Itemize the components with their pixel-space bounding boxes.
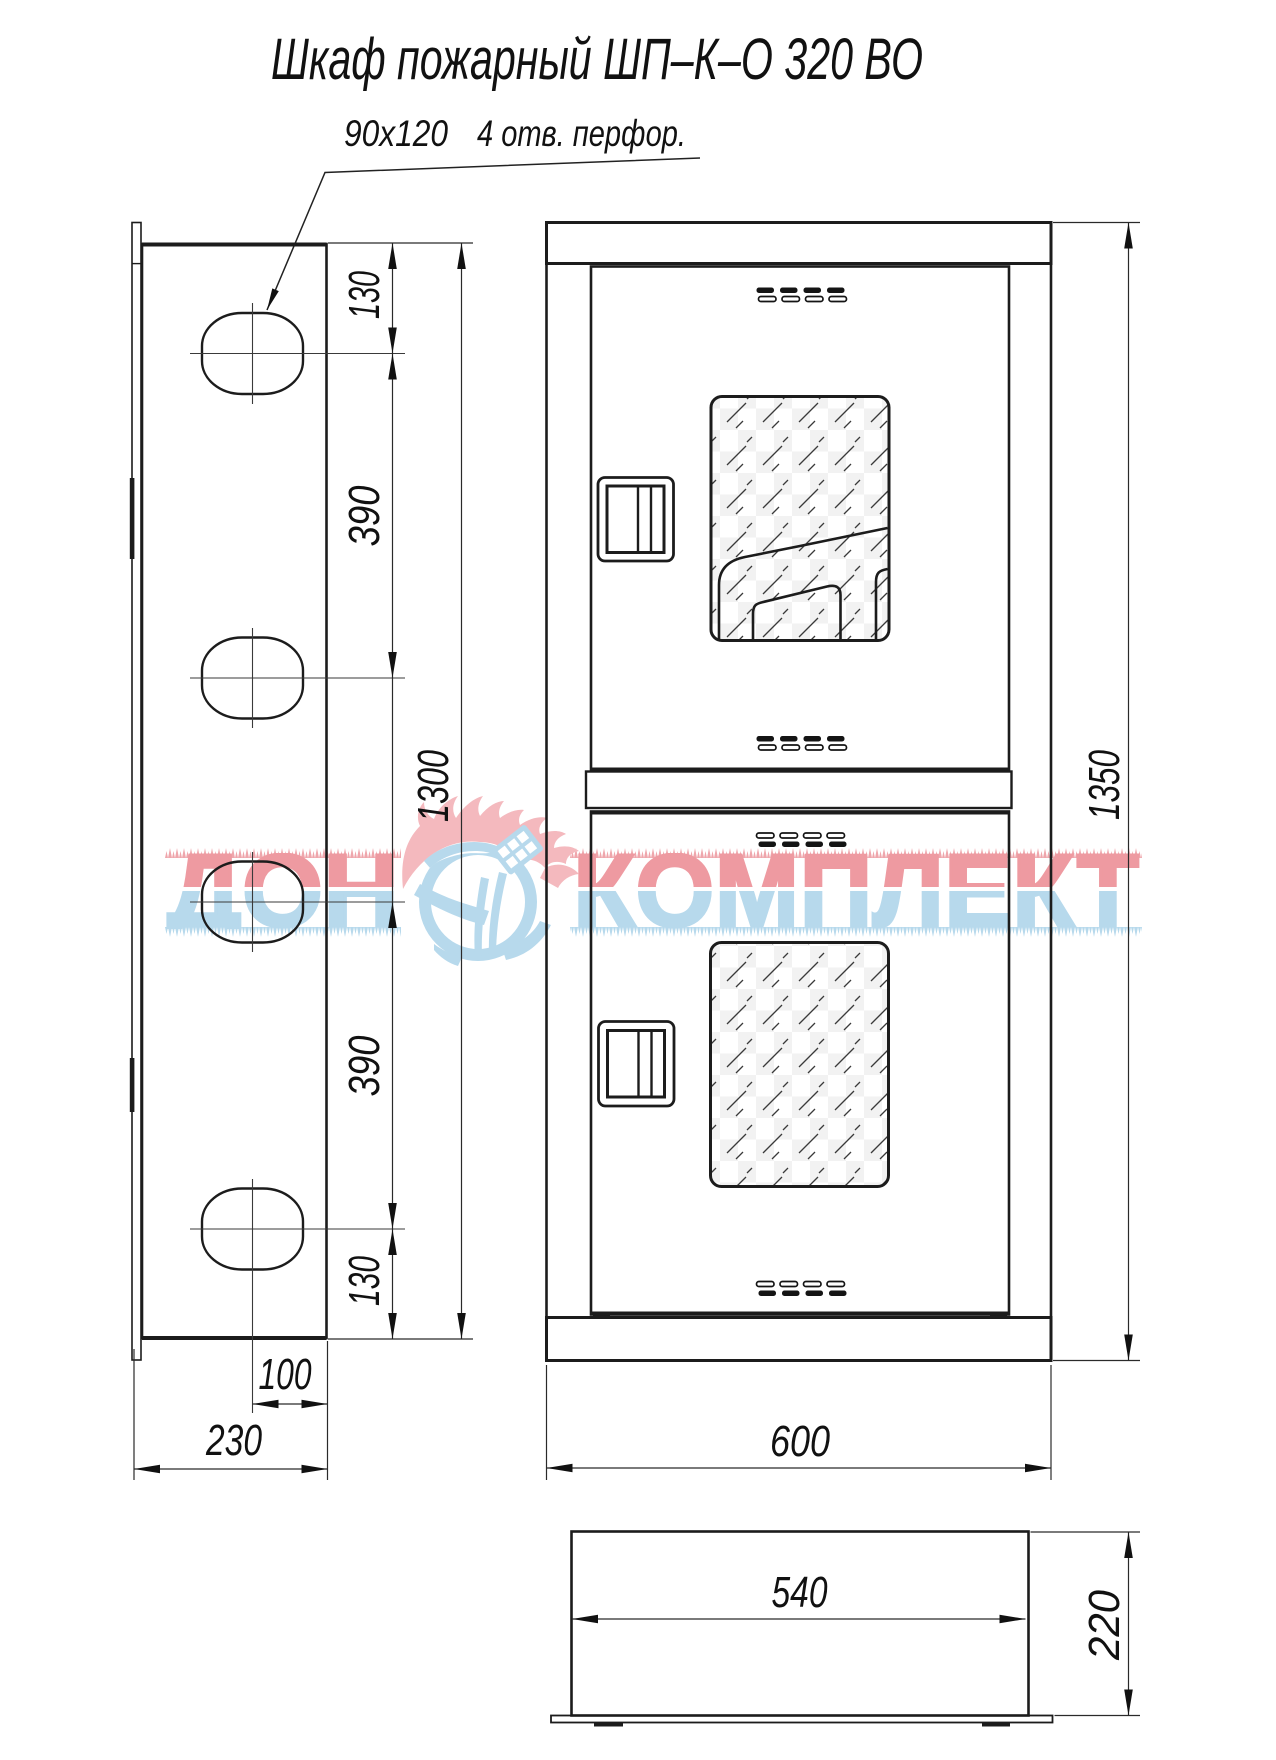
- svg-text:Шкаф пожарный ШП–К–О 320 ВО: Шкаф пожарный ШП–К–О 320 ВО: [271, 27, 923, 92]
- svg-text:1350: 1350: [1080, 750, 1129, 820]
- svg-text:230: 230: [205, 1416, 262, 1465]
- svg-text:90х120: 90х120: [344, 113, 448, 154]
- svg-text:4 отв. перфор.: 4 отв. перфор.: [477, 113, 686, 154]
- svg-text:600: 600: [770, 1417, 830, 1466]
- svg-text:130: 130: [340, 1256, 389, 1306]
- svg-text:540: 540: [772, 1568, 828, 1617]
- svg-text:100: 100: [259, 1350, 312, 1399]
- svg-text:390: 390: [340, 1035, 389, 1096]
- svg-text:130: 130: [340, 271, 389, 319]
- svg-text:1300: 1300: [409, 750, 458, 822]
- svg-text:220: 220: [1080, 1590, 1129, 1661]
- svg-text:390: 390: [340, 485, 389, 546]
